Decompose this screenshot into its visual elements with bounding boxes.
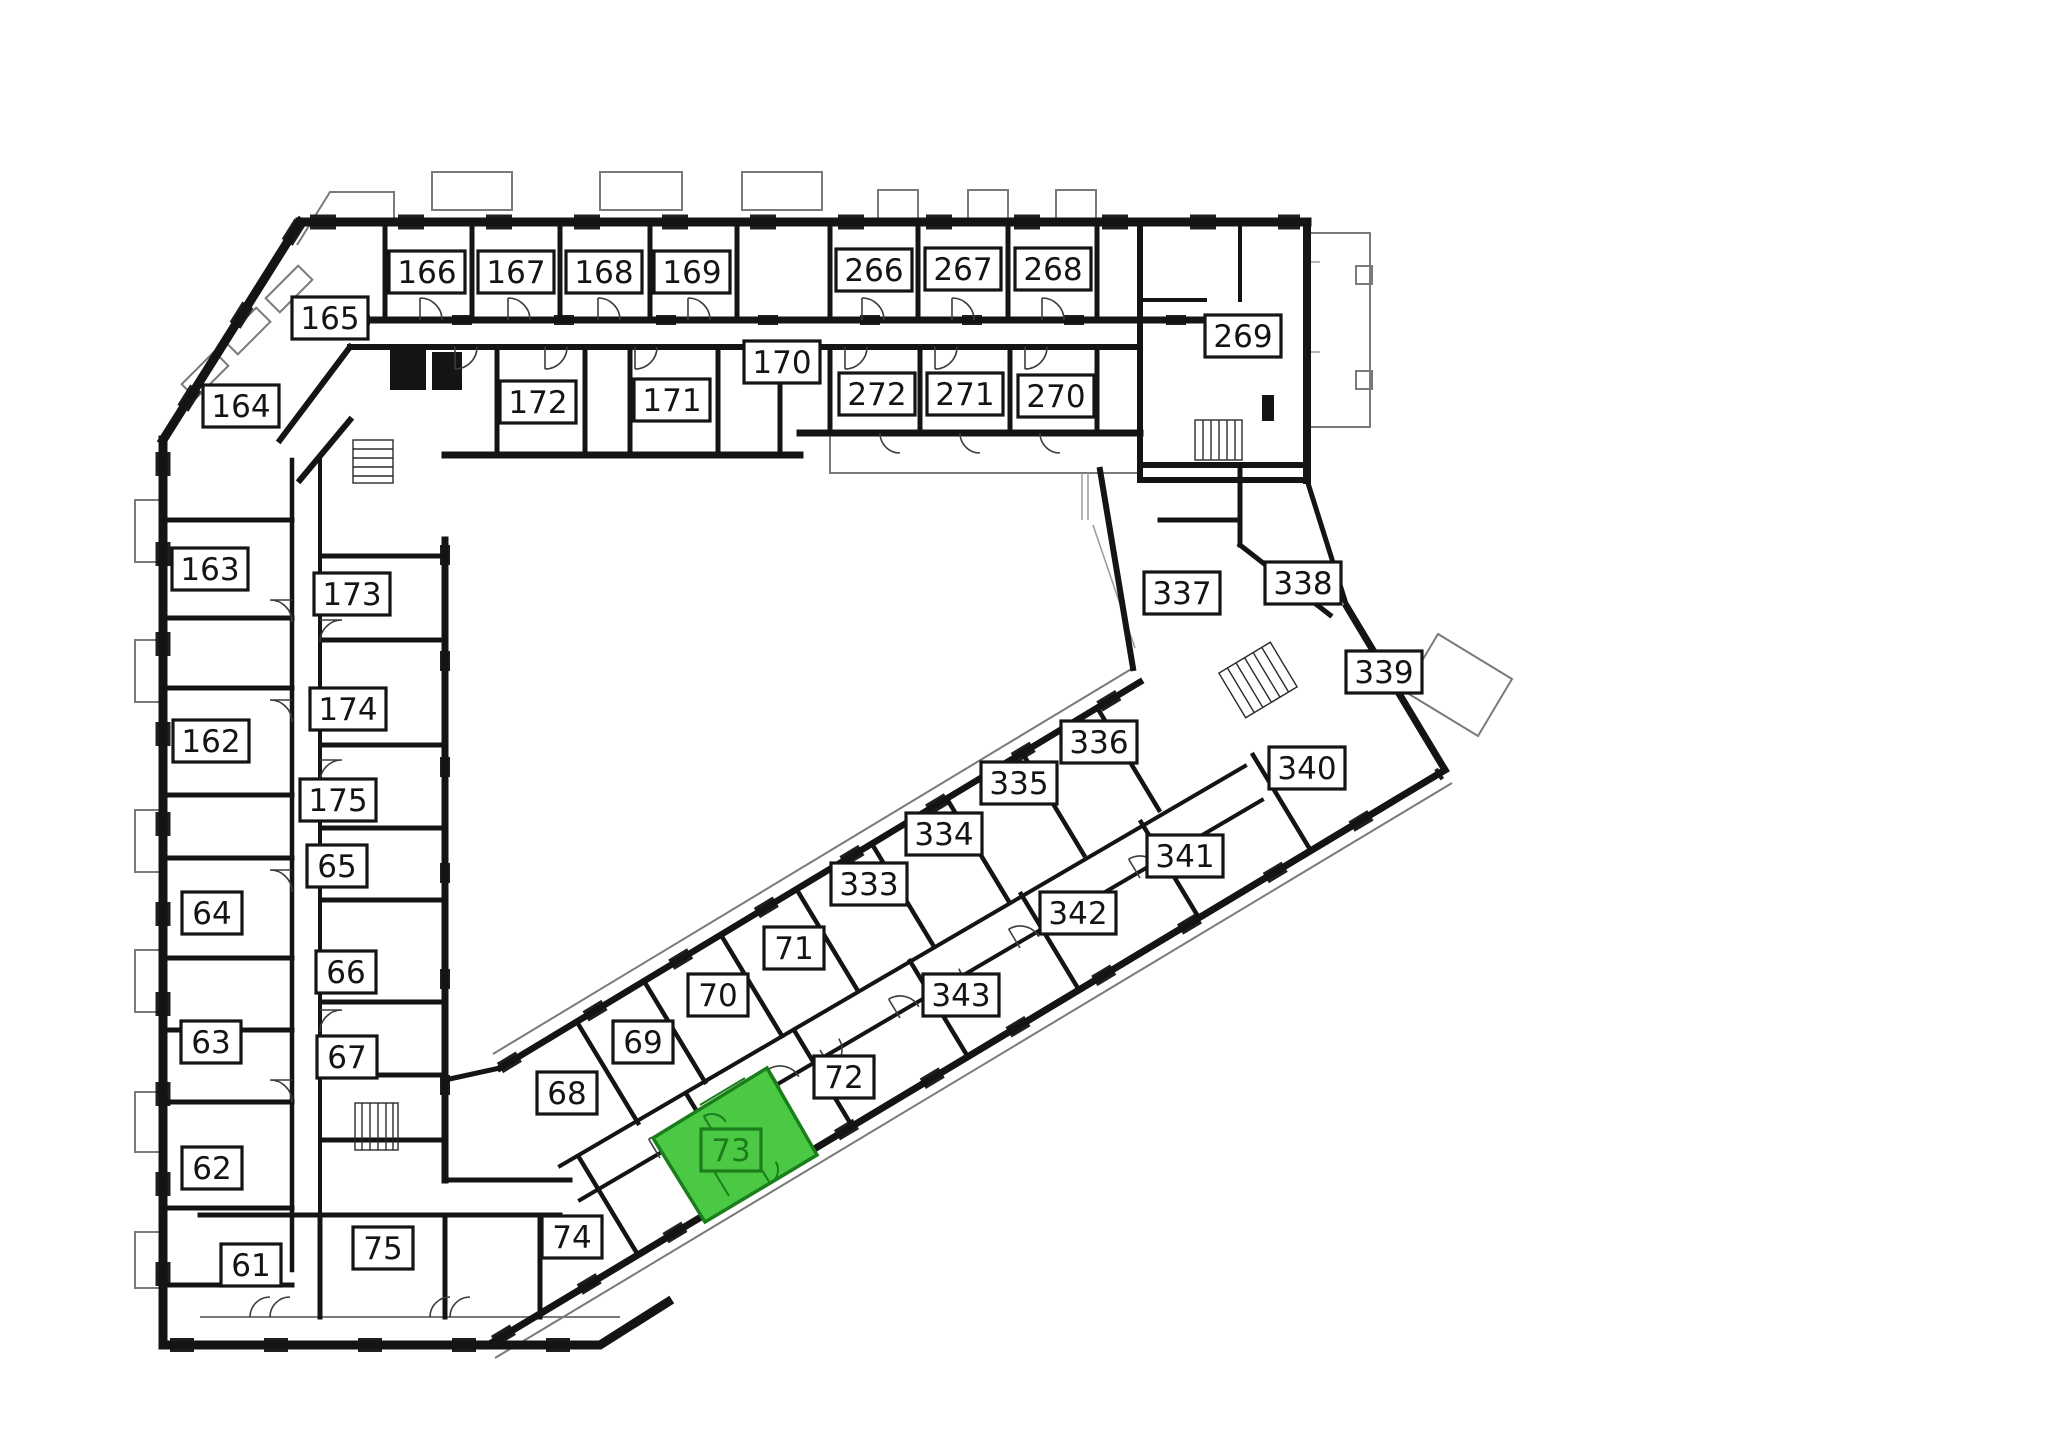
room-label-272[interactable]: 272 <box>839 373 915 415</box>
svg-text:172: 172 <box>508 385 567 421</box>
room-label-343[interactable]: 343 <box>923 974 999 1016</box>
floor-plan-page: 1661671681692662672682691651641721711702… <box>0 0 2048 1447</box>
room-label-166[interactable]: 166 <box>389 251 465 293</box>
svg-text:170: 170 <box>752 345 811 381</box>
room-label-266[interactable]: 266 <box>836 249 912 291</box>
svg-text:333: 333 <box>839 867 898 903</box>
stairs-and-elevators <box>353 350 1297 1150</box>
stairs-icon <box>355 1103 398 1150</box>
room-label-271[interactable]: 271 <box>927 373 1003 415</box>
svg-text:163: 163 <box>180 552 239 588</box>
svg-text:65: 65 <box>317 849 356 885</box>
room-label-66[interactable]: 66 <box>316 951 376 993</box>
room-label-340[interactable]: 340 <box>1269 747 1345 789</box>
room-label-334[interactable]: 334 <box>906 813 982 855</box>
svg-text:266: 266 <box>844 253 903 289</box>
svg-text:168: 168 <box>574 255 633 291</box>
room-label-69[interactable]: 69 <box>613 1021 673 1063</box>
room-label-339[interactable]: 339 <box>1346 651 1422 693</box>
room-label-64[interactable]: 64 <box>182 892 242 934</box>
room-label-173[interactable]: 173 <box>314 573 390 615</box>
svg-text:67: 67 <box>327 1040 366 1076</box>
svg-text:62: 62 <box>192 1151 231 1187</box>
room-label-174[interactable]: 174 <box>310 688 386 730</box>
room-label-75[interactable]: 75 <box>353 1227 413 1269</box>
svg-text:338: 338 <box>1273 566 1332 602</box>
stairs-icon <box>1195 420 1242 460</box>
svg-text:162: 162 <box>181 724 240 760</box>
svg-text:334: 334 <box>914 817 973 853</box>
svg-text:272: 272 <box>847 377 906 413</box>
stairs-icon <box>1219 642 1297 717</box>
svg-text:335: 335 <box>989 766 1048 802</box>
room-label-171[interactable]: 171 <box>634 379 710 421</box>
stairs-icon <box>353 440 393 483</box>
elevator-icon <box>390 350 426 390</box>
svg-text:64: 64 <box>192 896 231 932</box>
svg-text:341: 341 <box>1155 839 1214 875</box>
room-label-341[interactable]: 341 <box>1147 835 1223 877</box>
svg-text:268: 268 <box>1023 252 1082 288</box>
svg-text:73: 73 <box>711 1133 750 1169</box>
room-label-63[interactable]: 63 <box>181 1021 241 1063</box>
room-label-338[interactable]: 338 <box>1265 562 1341 604</box>
svg-text:72: 72 <box>824 1060 863 1096</box>
elevator-icon <box>432 352 462 390</box>
room-label-73[interactable]: 73 <box>701 1129 761 1171</box>
svg-text:175: 175 <box>308 783 367 819</box>
svg-text:167: 167 <box>486 255 545 291</box>
svg-text:63: 63 <box>191 1025 230 1061</box>
svg-text:339: 339 <box>1354 655 1413 691</box>
svg-text:343: 343 <box>931 978 990 1014</box>
svg-text:340: 340 <box>1277 751 1336 787</box>
svg-text:173: 173 <box>322 577 381 613</box>
room-label-70[interactable]: 70 <box>688 974 748 1016</box>
room-label-270[interactable]: 270 <box>1018 375 1094 417</box>
room-label-67[interactable]: 67 <box>317 1036 377 1078</box>
svg-text:164: 164 <box>211 389 270 425</box>
room-label-65[interactable]: 65 <box>307 845 367 887</box>
room-label-168[interactable]: 168 <box>566 251 642 293</box>
svg-text:342: 342 <box>1048 896 1107 932</box>
room-label-165[interactable]: 165 <box>292 297 368 339</box>
svg-text:337: 337 <box>1152 576 1211 612</box>
svg-text:66: 66 <box>326 955 365 991</box>
room-label-335[interactable]: 335 <box>981 762 1057 804</box>
svg-text:174: 174 <box>318 692 377 728</box>
svg-text:271: 271 <box>935 377 994 413</box>
room-label-162[interactable]: 162 <box>173 720 249 762</box>
svg-text:61: 61 <box>231 1248 270 1284</box>
svg-text:171: 171 <box>642 383 701 419</box>
room-label-169[interactable]: 169 <box>654 251 730 293</box>
room-label-167[interactable]: 167 <box>478 251 554 293</box>
room-label-68[interactable]: 68 <box>537 1072 597 1114</box>
room-label-269[interactable]: 269 <box>1205 315 1281 357</box>
room-label-172[interactable]: 172 <box>500 381 576 423</box>
room-label-175[interactable]: 175 <box>300 779 376 821</box>
room-label-74[interactable]: 74 <box>542 1216 602 1258</box>
svg-text:68: 68 <box>547 1076 586 1112</box>
svg-text:71: 71 <box>774 931 813 967</box>
svg-text:269: 269 <box>1213 319 1272 355</box>
svg-text:70: 70 <box>698 978 737 1014</box>
room-label-333[interactable]: 333 <box>831 863 907 905</box>
room-label-336[interactable]: 336 <box>1061 721 1137 763</box>
room-label-164[interactable]: 164 <box>203 385 279 427</box>
svg-text:169: 169 <box>662 255 721 291</box>
svg-text:336: 336 <box>1069 725 1128 761</box>
floor-plan-canvas: 1661671681692662672682691651641721711702… <box>0 0 2048 1447</box>
room-label-72[interactable]: 72 <box>814 1056 874 1098</box>
room-label-170[interactable]: 170 <box>744 341 820 383</box>
svg-text:74: 74 <box>552 1220 591 1256</box>
svg-text:267: 267 <box>933 252 992 288</box>
svg-text:69: 69 <box>623 1025 662 1061</box>
room-label-337[interactable]: 337 <box>1144 572 1220 614</box>
svg-text:75: 75 <box>363 1231 402 1267</box>
room-label-71[interactable]: 71 <box>764 927 824 969</box>
room-label-342[interactable]: 342 <box>1040 892 1116 934</box>
svg-text:166: 166 <box>397 255 456 291</box>
room-label-268[interactable]: 268 <box>1015 248 1091 290</box>
room-label-62[interactable]: 62 <box>182 1147 242 1189</box>
svg-text:270: 270 <box>1026 379 1085 415</box>
room-label-163[interactable]: 163 <box>172 548 248 590</box>
svg-text:165: 165 <box>300 301 359 337</box>
room-label-267[interactable]: 267 <box>925 248 1001 290</box>
room-label-61[interactable]: 61 <box>221 1244 281 1286</box>
